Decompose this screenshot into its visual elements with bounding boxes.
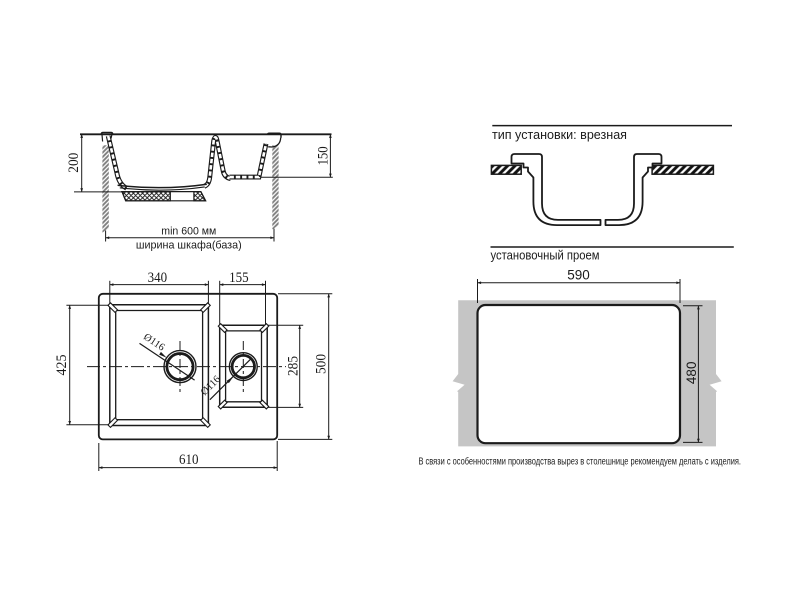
svg-text:В связи с особенностями произв: В связи с особенностями производства выр… <box>419 456 742 468</box>
svg-text:установочный проем: установочный проем <box>491 247 600 262</box>
svg-text:ширина шкафа(база): ширина шкафа(база) <box>136 240 242 252</box>
svg-text:340: 340 <box>148 270 168 286</box>
svg-text:тип установки: врезная: тип установки: врезная <box>492 127 627 142</box>
svg-text:155: 155 <box>229 270 249 286</box>
svg-text:425: 425 <box>54 355 70 376</box>
svg-text:590: 590 <box>567 268 590 283</box>
svg-text:285: 285 <box>286 356 302 376</box>
svg-text:min 600 мм: min 600 мм <box>161 226 216 238</box>
svg-text:500: 500 <box>314 354 330 374</box>
svg-text:200: 200 <box>66 153 82 173</box>
svg-text:Ø116: Ø116 <box>141 332 166 354</box>
svg-text:480: 480 <box>684 362 699 385</box>
svg-text:150: 150 <box>315 146 331 165</box>
svg-text:610: 610 <box>179 452 199 468</box>
